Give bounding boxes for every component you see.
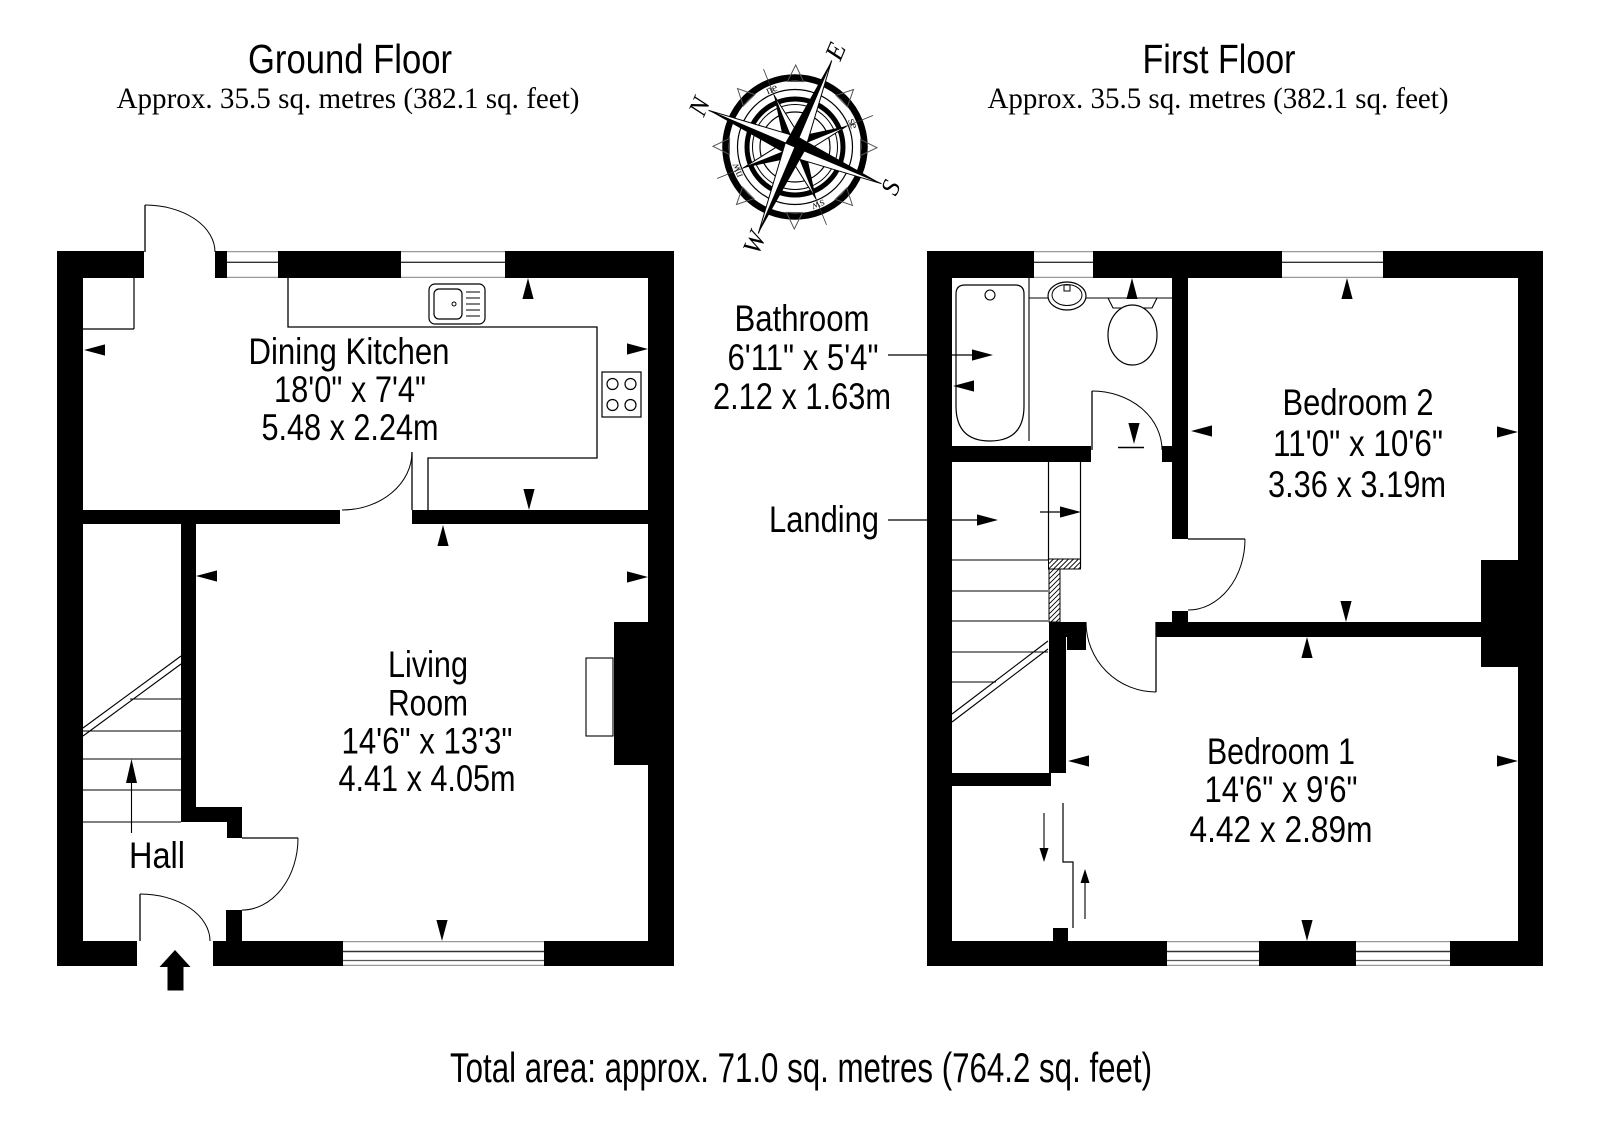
svg-text:Room: Room xyxy=(388,683,468,724)
svg-text:3.36 x 3.19m: 3.36 x 3.19m xyxy=(1268,464,1446,505)
svg-text:4.42 x 2.89m: 4.42 x 2.89m xyxy=(1190,809,1373,850)
svg-text:Approx. 35.5 sq. metres (382.1: Approx. 35.5 sq. metres (382.1 sq. feet) xyxy=(117,82,580,115)
svg-text:14'6" x 9'6": 14'6" x 9'6" xyxy=(1205,769,1358,810)
svg-text:Landing: Landing xyxy=(769,499,879,540)
svg-text:11'0" x 10'6": 11'0" x 10'6" xyxy=(1273,423,1443,464)
svg-text:Living: Living xyxy=(388,644,468,685)
svg-text:Ground Floor: Ground Floor xyxy=(248,36,452,82)
svg-text:Bedroom 2: Bedroom 2 xyxy=(1283,382,1434,423)
svg-text:14'6" x 13'3": 14'6" x 13'3" xyxy=(342,721,513,762)
svg-text:First Floor: First Floor xyxy=(1143,36,1296,82)
svg-text:5.48 x 2.24m: 5.48 x 2.24m xyxy=(262,407,439,448)
svg-text:Hall: Hall xyxy=(129,835,185,876)
svg-text:2.12 x 1.63m: 2.12 x 1.63m xyxy=(713,376,891,417)
svg-text:Total area: approx. 71.0 sq. m: Total area: approx. 71.0 sq. metres (764… xyxy=(450,1044,1152,1091)
svg-text:Bedroom 1: Bedroom 1 xyxy=(1207,731,1355,772)
svg-text:Approx. 35.5 sq. metres (382.1: Approx. 35.5 sq. metres (382.1 sq. feet) xyxy=(988,82,1449,115)
svg-text:18'0" x 7'4": 18'0" x 7'4" xyxy=(274,369,426,410)
svg-text:Dining Kitchen: Dining Kitchen xyxy=(249,331,450,372)
svg-text:Bathroom: Bathroom xyxy=(735,298,870,339)
svg-text:4.41 x 4.05m: 4.41 x 4.05m xyxy=(339,758,516,799)
svg-text:6'11" x 5'4": 6'11" x 5'4" xyxy=(728,337,879,378)
